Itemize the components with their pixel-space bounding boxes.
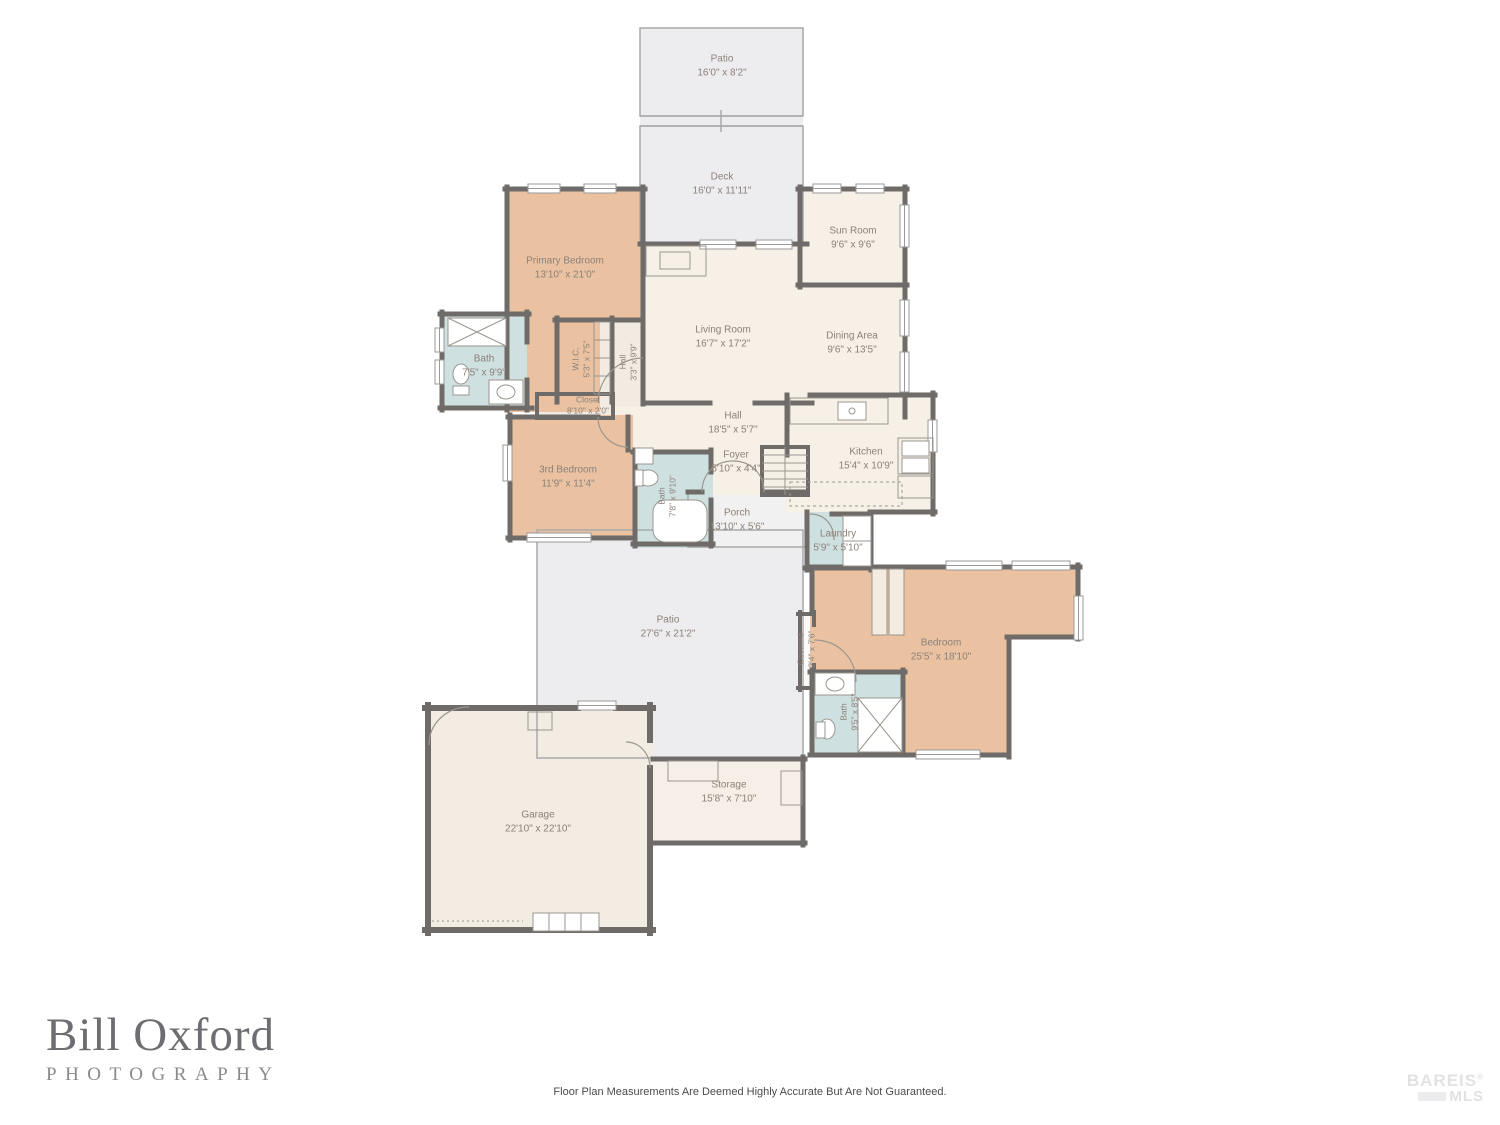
watermark-bar bbox=[1418, 1092, 1446, 1101]
logo-subtitle: PHOTOGRAPHY bbox=[46, 1064, 281, 1086]
logo-name: Bill Oxford bbox=[46, 1008, 281, 1062]
mls-watermark: BAREIS® MLS bbox=[1407, 1072, 1484, 1104]
registered-mark: ® bbox=[1477, 1072, 1484, 1081]
disclaimer-text: Floor Plan Measurements Are Deemed Highl… bbox=[0, 1086, 1500, 1098]
floor-plan-drawing bbox=[0, 0, 1500, 1125]
watermark-mls: MLS bbox=[1449, 1088, 1484, 1105]
photographer-logo: Bill Oxford PHOTOGRAPHY bbox=[46, 1008, 281, 1086]
